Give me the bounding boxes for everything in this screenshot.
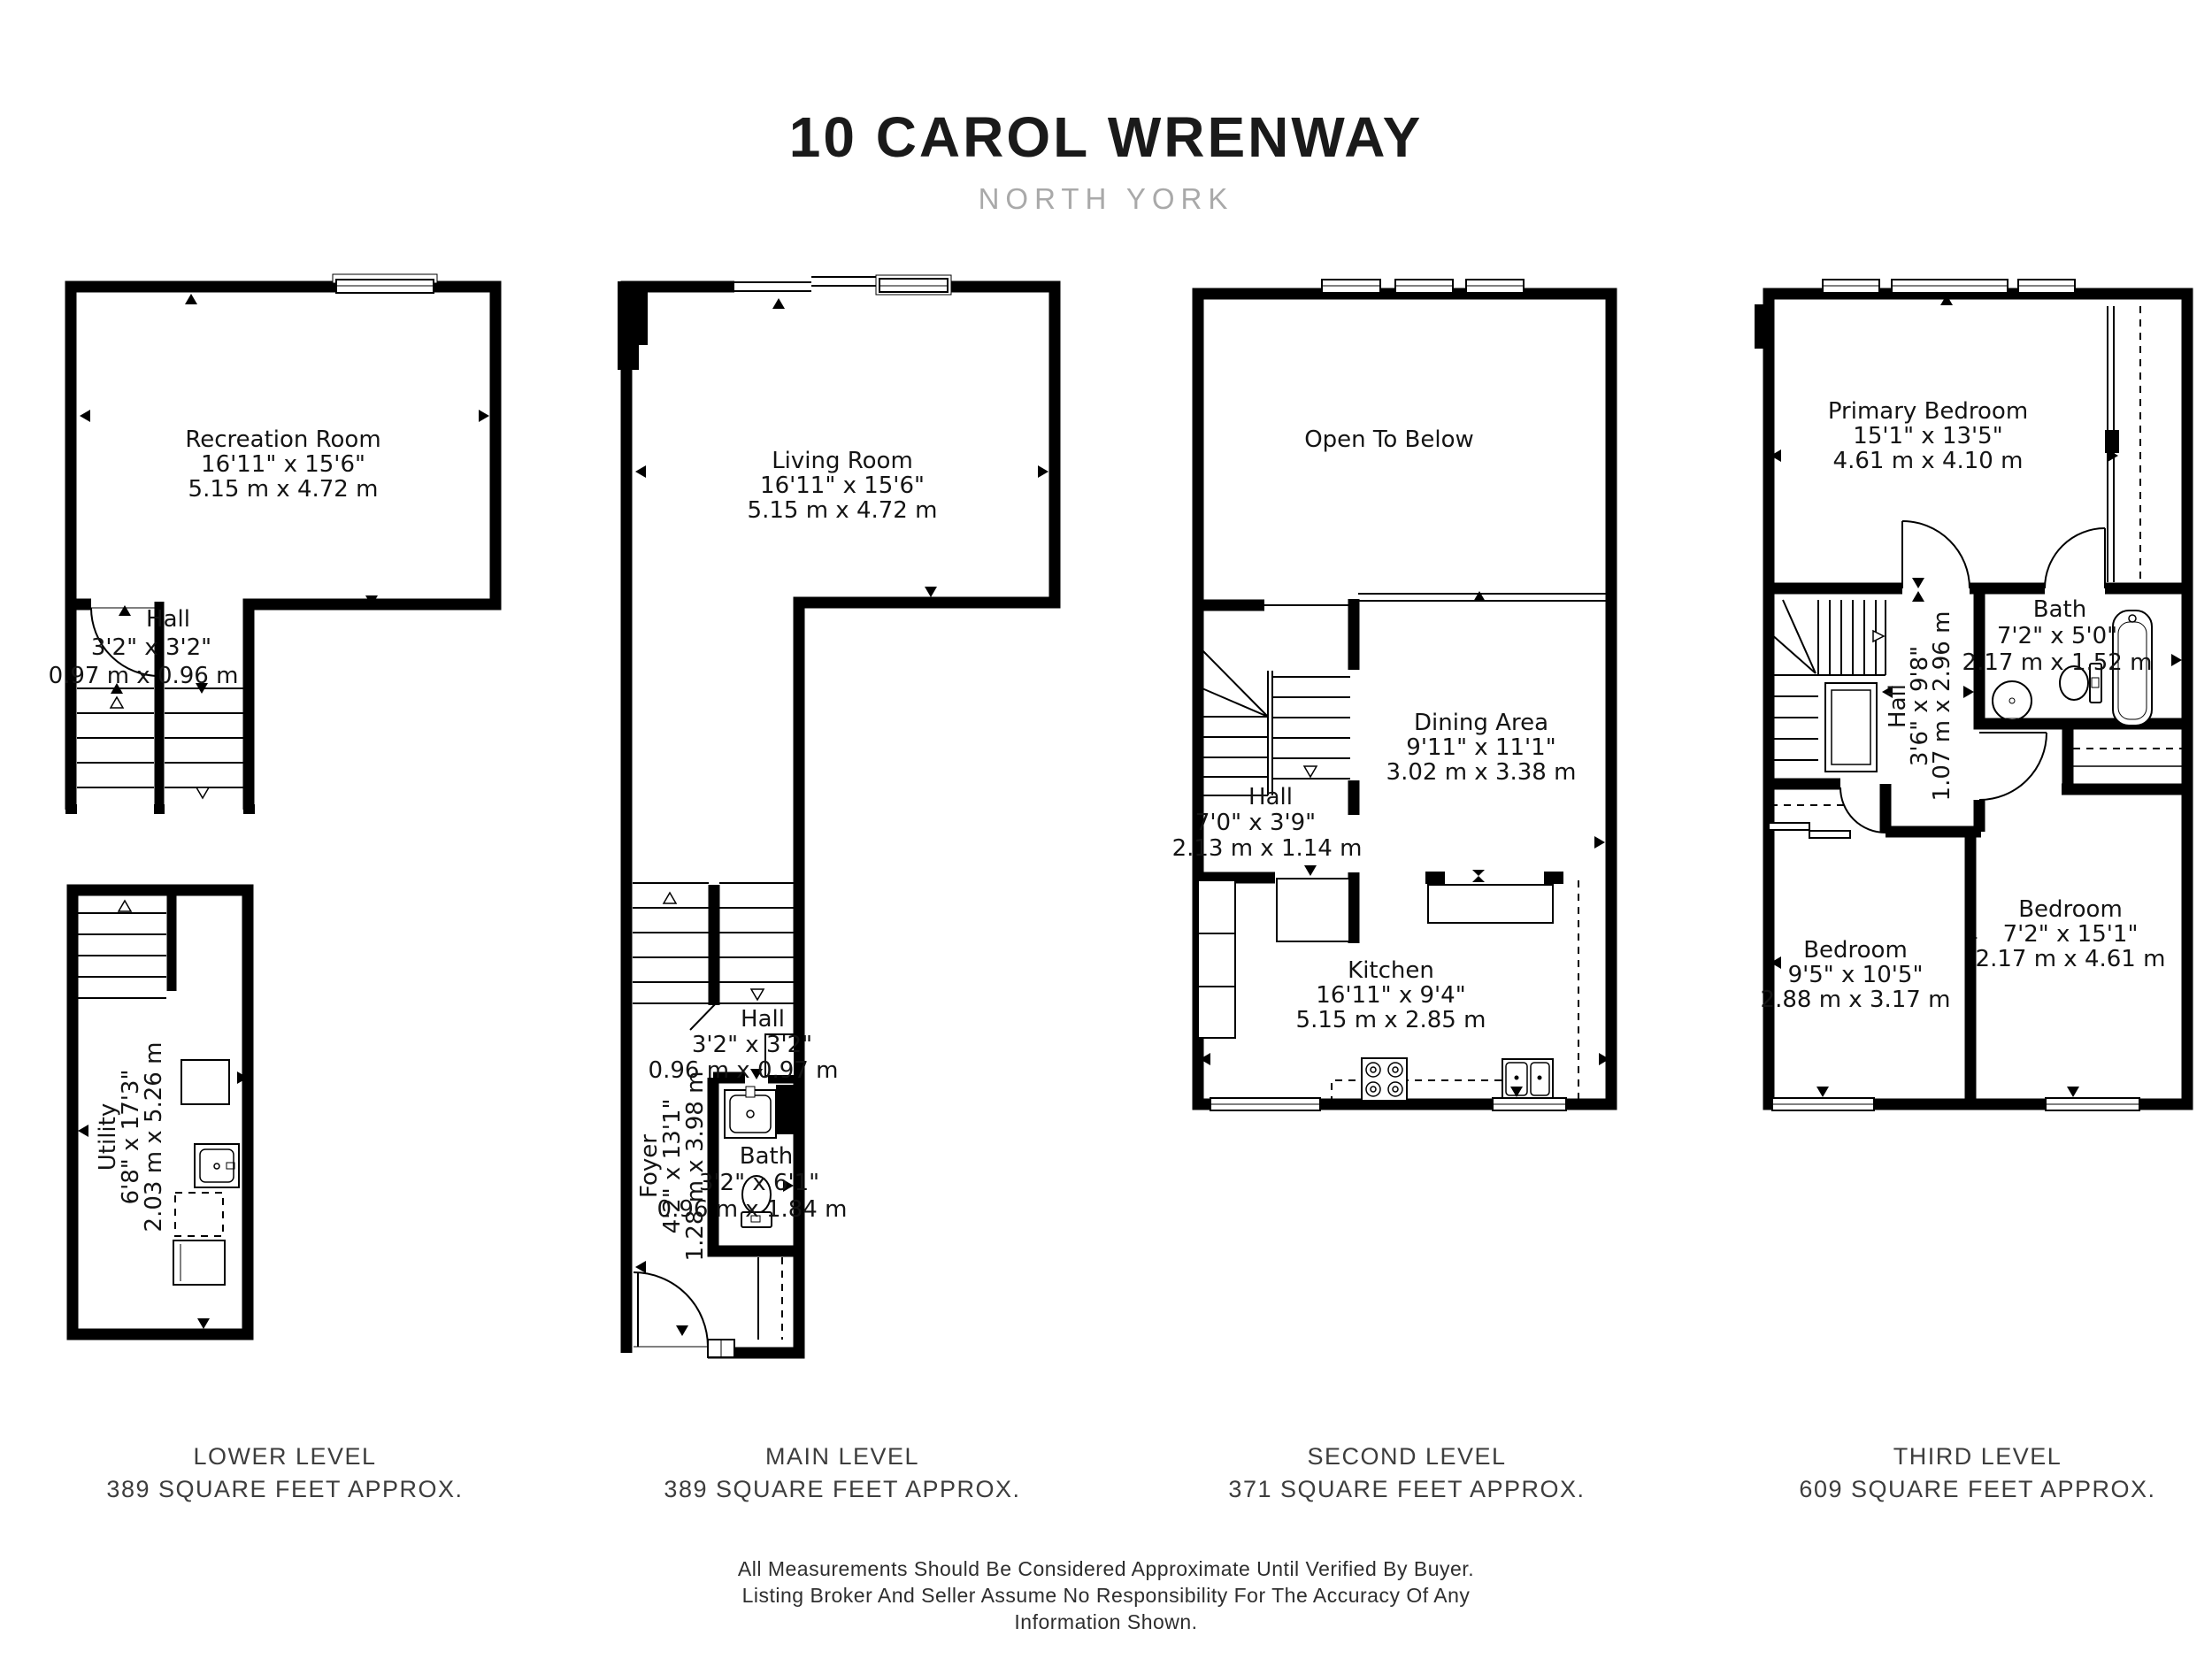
window-icon — [734, 275, 951, 295]
room-label: Living Room — [772, 448, 913, 474]
sliding-door-icon — [1769, 823, 1809, 830]
pantry-icon — [1277, 879, 1349, 941]
room-label: Bath — [2033, 596, 2086, 623]
arrow-down-icon — [2067, 1087, 2079, 1097]
room-dim-metric: 5.15 m x 4.72 m — [748, 497, 938, 524]
room-label: Hall — [146, 606, 190, 633]
room-dim-imperial: 7'2" x 15'1" — [2003, 921, 2139, 948]
arrow-down-icon — [1816, 1087, 1829, 1097]
arrow-down-icon — [1304, 865, 1317, 876]
arrow-down-icon — [925, 587, 937, 597]
room-dim-metric: 2.17 m x 1.52 m — [1962, 649, 2153, 676]
arrow-left-icon — [78, 1125, 88, 1137]
disclaimer-line: Information Shown. — [0, 1609, 2212, 1635]
room-dim-imperial: 3'2" x 6'1" — [699, 1170, 819, 1196]
level-caption-main: MAIN LEVEL 389 SQUARE FEET APPROX. — [621, 1440, 1064, 1506]
room-dim-metric: 1.07 m x 2.96 m — [1929, 611, 1955, 802]
room-labels: Living Room 16'11" x 15'6" 5.15 m x 4.72… — [636, 448, 937, 1261]
header: 10 CAROL WRENWAY NORTH YORK — [0, 104, 2212, 216]
stair-down-arrow-icon — [1304, 766, 1317, 777]
window-icon — [333, 274, 437, 293]
room-dim-imperial: 16'11" x 15'6" — [201, 451, 365, 478]
counter-icon — [1198, 880, 1235, 1038]
level-caption-second: SECOND LEVEL 371 SQUARE FEET APPROX. — [1186, 1440, 1628, 1506]
arrow-up-icon — [772, 298, 785, 309]
room-dim-metric: 2.13 m x 1.14 m — [1172, 835, 1363, 862]
room-labels: Primary Bedroom 15'1" x 13'5" 4.61 m x 4… — [1761, 398, 2166, 1013]
level-caption-lower: LOWER LEVEL 389 SQUARE FEET APPROX. — [65, 1440, 504, 1506]
room-dim-imperial: 7'0" x 3'9" — [1195, 810, 1316, 836]
room-label: Hall — [1248, 784, 1293, 810]
stair-arrow-icon — [1873, 631, 1884, 641]
stairs-icon — [1769, 600, 1886, 772]
arrow-right-icon — [479, 410, 489, 422]
room-dim-imperial: 15'1" x 13'5" — [1853, 423, 2002, 449]
stove-icon — [1362, 1058, 1407, 1101]
room-dim-metric: 2.03 m x 5.26 m — [141, 1042, 167, 1233]
room-label: Open To Below — [1304, 426, 1474, 453]
arrow-right-icon — [1038, 465, 1048, 478]
room-label: Kitchen — [1348, 957, 1434, 984]
disclaimer-line: All Measurements Should Be Considered Ap… — [0, 1555, 2212, 1582]
room-dim-metric: 3.02 m x 3.38 m — [1386, 759, 1577, 786]
arrow-up-icon — [1912, 591, 1924, 602]
room-dim-metric: 0.97 m x 0.96 m — [49, 663, 239, 689]
level-name: LOWER LEVEL — [65, 1440, 504, 1473]
room-labels: Recreation Room 16'11" x 15'6" 5.15 m x … — [49, 426, 381, 1232]
room-label: Bedroom — [2018, 896, 2123, 923]
stair-up-arrow-icon — [664, 893, 676, 903]
arrow-left-icon — [80, 410, 90, 422]
room-label: Recreation Room — [185, 426, 380, 453]
open-to-below-edge — [1264, 594, 1611, 605]
arrow-right-icon — [1963, 686, 1974, 698]
arrow-up-icon — [119, 605, 131, 616]
room-dim-metric: 2.17 m x 4.61 m — [1976, 946, 2166, 972]
arrow-right-icon — [1594, 836, 1605, 849]
floor-plan-main-level: Living Room 16'11" x 15'6" 5.15 m x 4.72… — [621, 281, 1064, 1365]
arrow-up-icon — [185, 294, 197, 304]
room-dim-metric: 0.96 m x 0.97 m — [649, 1057, 839, 1084]
level-area: 389 SQUARE FEET APPROX. — [621, 1473, 1064, 1506]
room-label: Dining Area — [1414, 710, 1548, 736]
page-title: 10 CAROL WRENWAY — [0, 104, 2212, 170]
level-name: SECOND LEVEL — [1186, 1440, 1628, 1473]
room-label: Primary Bedroom — [1828, 398, 2028, 425]
room-label: Bath — [740, 1143, 793, 1170]
stair-down-arrow-icon — [751, 989, 764, 1000]
arrow-down-icon — [676, 1325, 688, 1336]
room-dim-imperial: 7'2" x 5'0" — [1997, 623, 2117, 649]
disclaimer: All Measurements Should Be Considered Ap… — [0, 1555, 2212, 1635]
utility-fixtures — [173, 1060, 239, 1285]
room-label: Hall — [741, 1006, 785, 1033]
room-dim-imperial: 3'2" x 3'2" — [91, 634, 211, 661]
room-dim-imperial: 9'11" x 11'1" — [1406, 734, 1555, 761]
double-sink-icon — [1502, 1059, 1553, 1099]
level-area: 389 SQUARE FEET APPROX. — [65, 1473, 504, 1506]
washer-icon — [173, 1240, 225, 1285]
door-leaf-icon — [690, 1001, 718, 1030]
room-dim-metric: 5.15 m x 2.85 m — [1296, 1007, 1486, 1033]
opening-arrow-icon — [1472, 876, 1485, 882]
room-dim-imperial: 16'11" x 15'6" — [760, 472, 925, 499]
floor-plan-third-level: Primary Bedroom 15'1" x 13'5" 4.61 m x 4… — [1756, 281, 2199, 1118]
level-area: 371 SQUARE FEET APPROX. — [1186, 1473, 1628, 1506]
floor-plan-page: 10 CAROL WRENWAY NORTH YORK — [0, 0, 2212, 1659]
floor-plan-second-level: Open To Below Dining Area 9'11" x 11'1" … — [1186, 281, 1628, 1118]
arrow-left-icon — [635, 1261, 646, 1273]
level-name: MAIN LEVEL — [621, 1440, 1064, 1473]
front-door-icon — [634, 1272, 734, 1357]
page-subtitle: NORTH YORK — [0, 182, 2212, 216]
room-dim-metric: 4.61 m x 4.10 m — [1833, 448, 2024, 474]
peninsula-counter-icon — [1428, 885, 1553, 923]
stairs-icon — [1198, 646, 1350, 795]
arrow-up-icon — [1473, 591, 1486, 602]
disclaimer-line: Listing Broker And Seller Assume No Resp… — [0, 1582, 2212, 1609]
room-dim-metric: 5.15 m x 4.72 m — [188, 476, 379, 503]
opening-arrow-icon — [1472, 870, 1485, 876]
stair-up-arrow-icon — [111, 697, 123, 708]
arrow-right-icon — [2171, 654, 2182, 666]
room-dim-imperial: 3'2" x 3'2" — [692, 1032, 812, 1058]
arrow-down-icon — [197, 1318, 210, 1329]
room-dim-imperial: 16'11" x 9'4" — [1316, 982, 1465, 1009]
level-caption-third: THIRD LEVEL 609 SQUARE FEET APPROX. — [1756, 1440, 2199, 1506]
room-dim-metric: 1.28 m x 3.98 m — [682, 1071, 709, 1262]
level-name: THIRD LEVEL — [1756, 1440, 2199, 1473]
arrow-down-icon — [1912, 578, 1924, 588]
floor-plan-lower-level: Recreation Room 16'11" x 15'6" 5.15 m x … — [65, 281, 508, 1365]
sliding-door-icon — [1809, 831, 1850, 838]
sink-icon — [1993, 681, 2032, 720]
stair-down-arrow-icon — [196, 787, 209, 798]
room-dim-imperial: 9'5" x 10'5" — [1788, 962, 1924, 988]
room-label: Bedroom — [1803, 937, 1908, 964]
arrow-left-icon — [635, 465, 646, 478]
level-area: 609 SQUARE FEET APPROX. — [1756, 1473, 2199, 1506]
room-dim-metric: 2.88 m x 3.17 m — [1761, 987, 1951, 1013]
stair-up-arrow-icon — [119, 901, 131, 911]
